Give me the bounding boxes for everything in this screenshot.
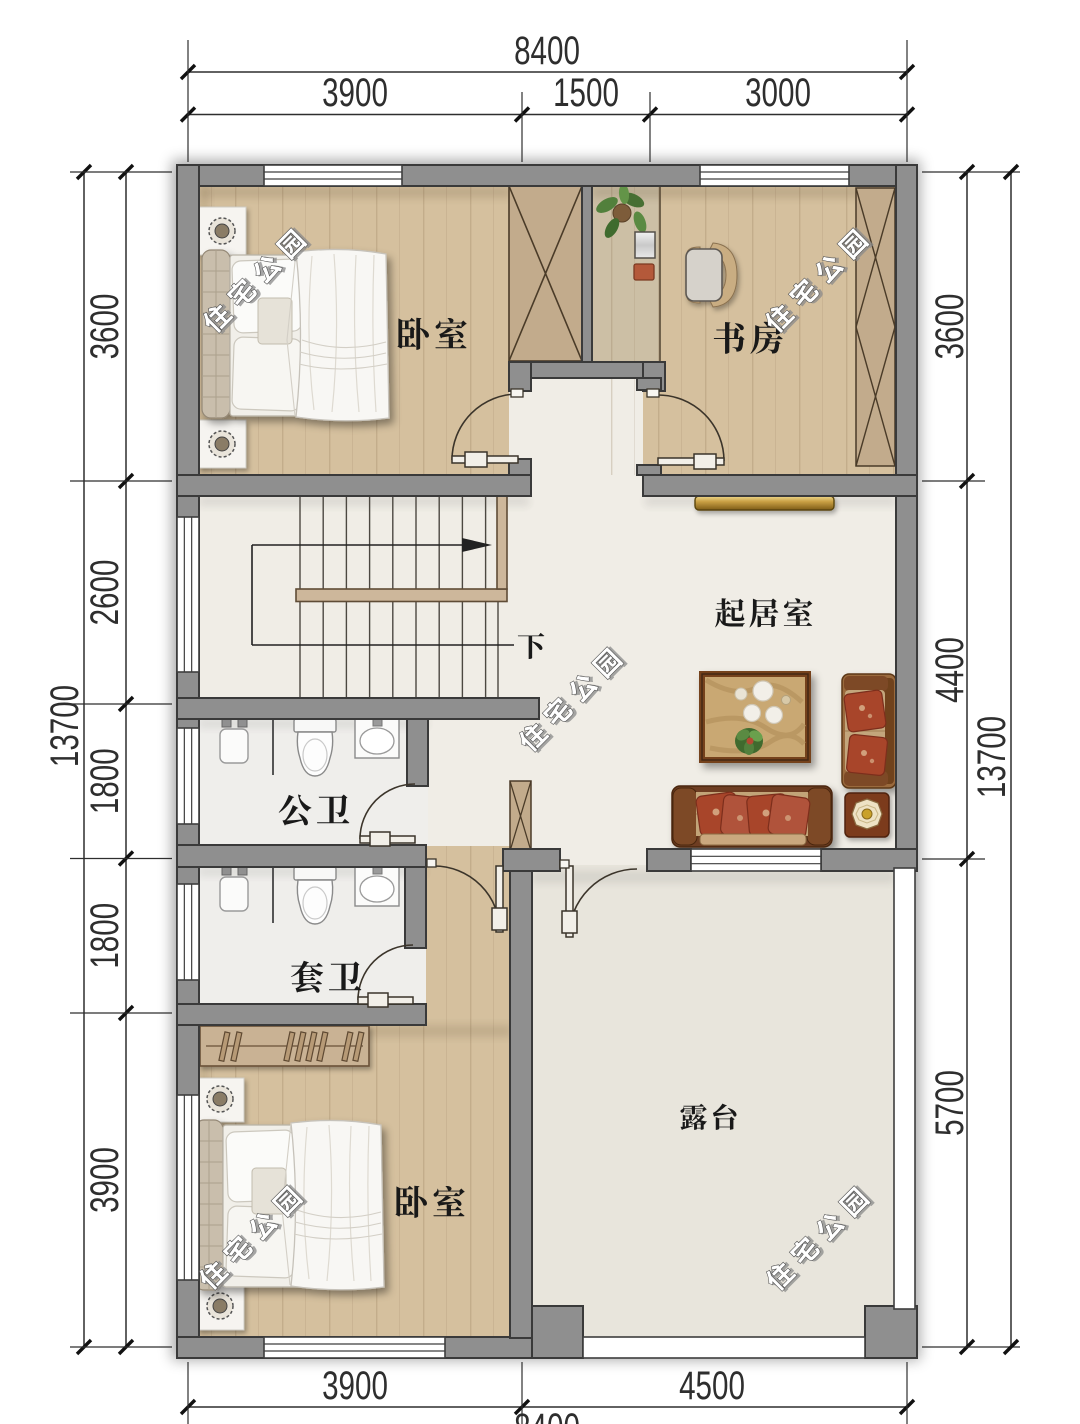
- svg-text:8400: 8400: [514, 1406, 580, 1424]
- svg-text:13700: 13700: [43, 685, 87, 767]
- svg-text:8400: 8400: [514, 29, 580, 73]
- svg-text:4500: 4500: [679, 1364, 745, 1408]
- svg-text:3900: 3900: [322, 71, 388, 115]
- svg-text:3600: 3600: [83, 294, 127, 360]
- svg-text:4400: 4400: [928, 637, 972, 703]
- svg-text:1800: 1800: [83, 903, 127, 969]
- svg-text:1800: 1800: [83, 748, 127, 814]
- svg-text:5700: 5700: [928, 1070, 972, 1136]
- svg-text:3900: 3900: [322, 1364, 388, 1408]
- svg-text:2600: 2600: [83, 560, 127, 626]
- svg-text:3900: 3900: [83, 1147, 127, 1213]
- svg-text:3000: 3000: [745, 71, 811, 115]
- svg-text:1500: 1500: [553, 71, 619, 115]
- svg-text:3600: 3600: [928, 294, 972, 360]
- svg-text:13700: 13700: [970, 716, 1014, 798]
